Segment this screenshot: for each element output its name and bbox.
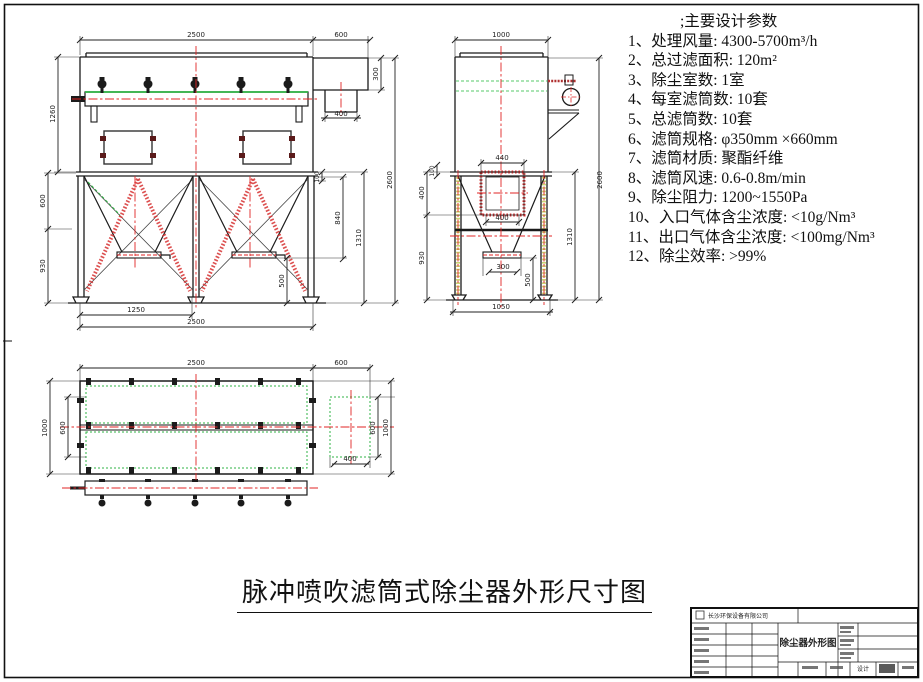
parameters-header: ;主要设计参数 [628, 12, 920, 32]
dim-side-width-bottom: 1050 [492, 303, 510, 311]
parameter-item: 12、除尘效率: >99% [628, 247, 920, 267]
plan-dim-ticks [47, 365, 394, 477]
dim-side-right-inner: 1310 [566, 228, 574, 246]
inlet-duct-outer [481, 172, 524, 215]
pulse-valves [98, 77, 293, 93]
dim-front-outlet-duct: 400 [334, 110, 347, 118]
dim-side-discharge-height: 500 [524, 273, 532, 286]
dim-plan-right-outer: 1000 [382, 419, 390, 437]
plan-filter-area [86, 432, 307, 468]
dim-plan-left-outer: 1000 [41, 419, 49, 437]
drawing-main-title: 脉冲喷吹滤筒式除尘器外形尺寸图 [237, 572, 652, 613]
dim-front-right-mid: 1310 [355, 229, 363, 247]
design-label: 设计 [857, 665, 869, 673]
dim-plan-left-inner: 600 [59, 421, 67, 434]
front-green-hidden-line [88, 182, 120, 215]
company-name: 长沙环保设备有限公司 [708, 612, 768, 620]
dim-front-width-bottom: 2500 [187, 318, 205, 326]
parameter-item: 7、滤筒材质: 聚酯纤维 [628, 149, 920, 169]
parameter-item: 8、滤筒风速: 0.6-0.8m/min [628, 169, 920, 189]
pulse-valve [144, 77, 153, 93]
pulse-valve [98, 77, 107, 93]
dim-side-left-top: 100 [430, 165, 436, 176]
parameter-item: 10、入口气体含尘浓度: <10g/Nm³ [628, 208, 920, 228]
plan-valve [238, 479, 245, 507]
dim-front-width-top: 2500 [187, 31, 205, 39]
dim-plan-outlet-width: 400 [343, 455, 356, 463]
design-parameters: ;主要设计参数 1、处理风量: 4300-5700m³/h 2、总过滤面积: 1… [628, 12, 920, 267]
side-green-lines [456, 81, 547, 91]
manifold-leg [296, 106, 302, 122]
dim-front-left-upper: 600 [39, 194, 47, 207]
parameter-item: 11、出口气体含尘浓度: <100mg/Nm³ [628, 228, 920, 248]
plan-valve [192, 479, 199, 507]
valve-centermark [561, 87, 581, 107]
dim-front-right-outer: 2600 [386, 171, 394, 189]
dim-front-platform-thk: 100 [315, 171, 321, 182]
drawing-title: 除尘器外形图 [779, 637, 836, 649]
dim-side-inlet-top: 440 [495, 154, 508, 162]
dim-side-discharge-width: 300 [496, 263, 509, 271]
dim-side-right-outer: 2600 [596, 171, 604, 189]
access-door [243, 131, 291, 164]
title-block: 长沙环保设备有限公司 除尘器外形图 设计 [691, 608, 918, 677]
parameter-item: 6、滤筒规格: φ350mm ×660mm [628, 130, 920, 150]
parameter-item: 9、除尘阻力: 1200~1550Pa [628, 188, 920, 208]
dim-side-width-top: 1000 [492, 31, 510, 39]
plan-valve [285, 479, 292, 507]
front-ext-lines [44, 36, 399, 331]
front-centerlines [72, 46, 341, 310]
plan-body [80, 381, 313, 474]
plan-clamps [77, 378, 316, 474]
front-view: 2500 600 400 1260 600 930 300 100 840 13… [39, 31, 399, 331]
front-dim-ticks [45, 37, 398, 330]
dim-front-hopper-out: 500 [278, 274, 286, 287]
plan-valve [99, 479, 106, 507]
plan-mid-rail [80, 425, 313, 430]
pulse-valve [284, 77, 293, 93]
dim-side-inlet-bottom: 400 [495, 214, 508, 222]
inlet-duct-inner [486, 177, 519, 210]
access-door [104, 131, 152, 164]
pulse-valve [191, 77, 200, 93]
side-view: 1000 440 100 400 930 400 300 500 1310 26… [418, 31, 604, 316]
plan-centerlines [60, 374, 394, 488]
dim-plan-outlet-top: 600 [334, 359, 347, 367]
door-hinges [100, 136, 295, 158]
plan-view: 2500 600 1000 600 600 1000 400 [41, 359, 395, 507]
drawing-sheet: 2500 600 400 1260 600 930 300 100 840 13… [0, 0, 923, 682]
access-doors [100, 131, 295, 164]
parameter-item: 4、每室滤筒数: 10套 [628, 90, 920, 110]
pulse-valve [237, 77, 246, 93]
manifold-leg [91, 106, 97, 122]
front-outline [76, 53, 368, 176]
dim-front-right-inner: 840 [334, 211, 342, 224]
valve-shelf [548, 110, 579, 139]
plan-filter-area [86, 386, 307, 423]
plan-valves [99, 479, 292, 507]
company-logo [696, 611, 704, 619]
plan-valve [145, 479, 152, 507]
parameter-item: 3、除尘室数: 1室 [628, 71, 920, 91]
dim-front-outlet-height: 300 [372, 67, 380, 80]
dim-side-left-lower: 930 [418, 251, 426, 264]
parameter-item: 5、总滤筒数: 10套 [628, 110, 920, 130]
dim-front-bay-width: 1250 [127, 306, 145, 314]
dim-side-inlet-height: 400 [418, 186, 426, 199]
parameter-item: 2、总过滤面积: 120m² [628, 51, 920, 71]
inlet-duct-band [481, 172, 524, 215]
dim-plan-width-top: 2500 [187, 359, 205, 367]
dim-plan-right-inner: 600 [369, 421, 377, 434]
dim-front-left-lower: 930 [39, 259, 47, 272]
side-inlet-duct [481, 172, 524, 215]
parameter-item: 1、处理风量: 4300-5700m³/h [628, 32, 920, 52]
side-pulse-valve [548, 75, 581, 139]
plan-dim-lines [50, 368, 391, 474]
dim-front-body-height: 1260 [49, 105, 57, 123]
dim-front-outlet-top: 600 [334, 31, 347, 39]
